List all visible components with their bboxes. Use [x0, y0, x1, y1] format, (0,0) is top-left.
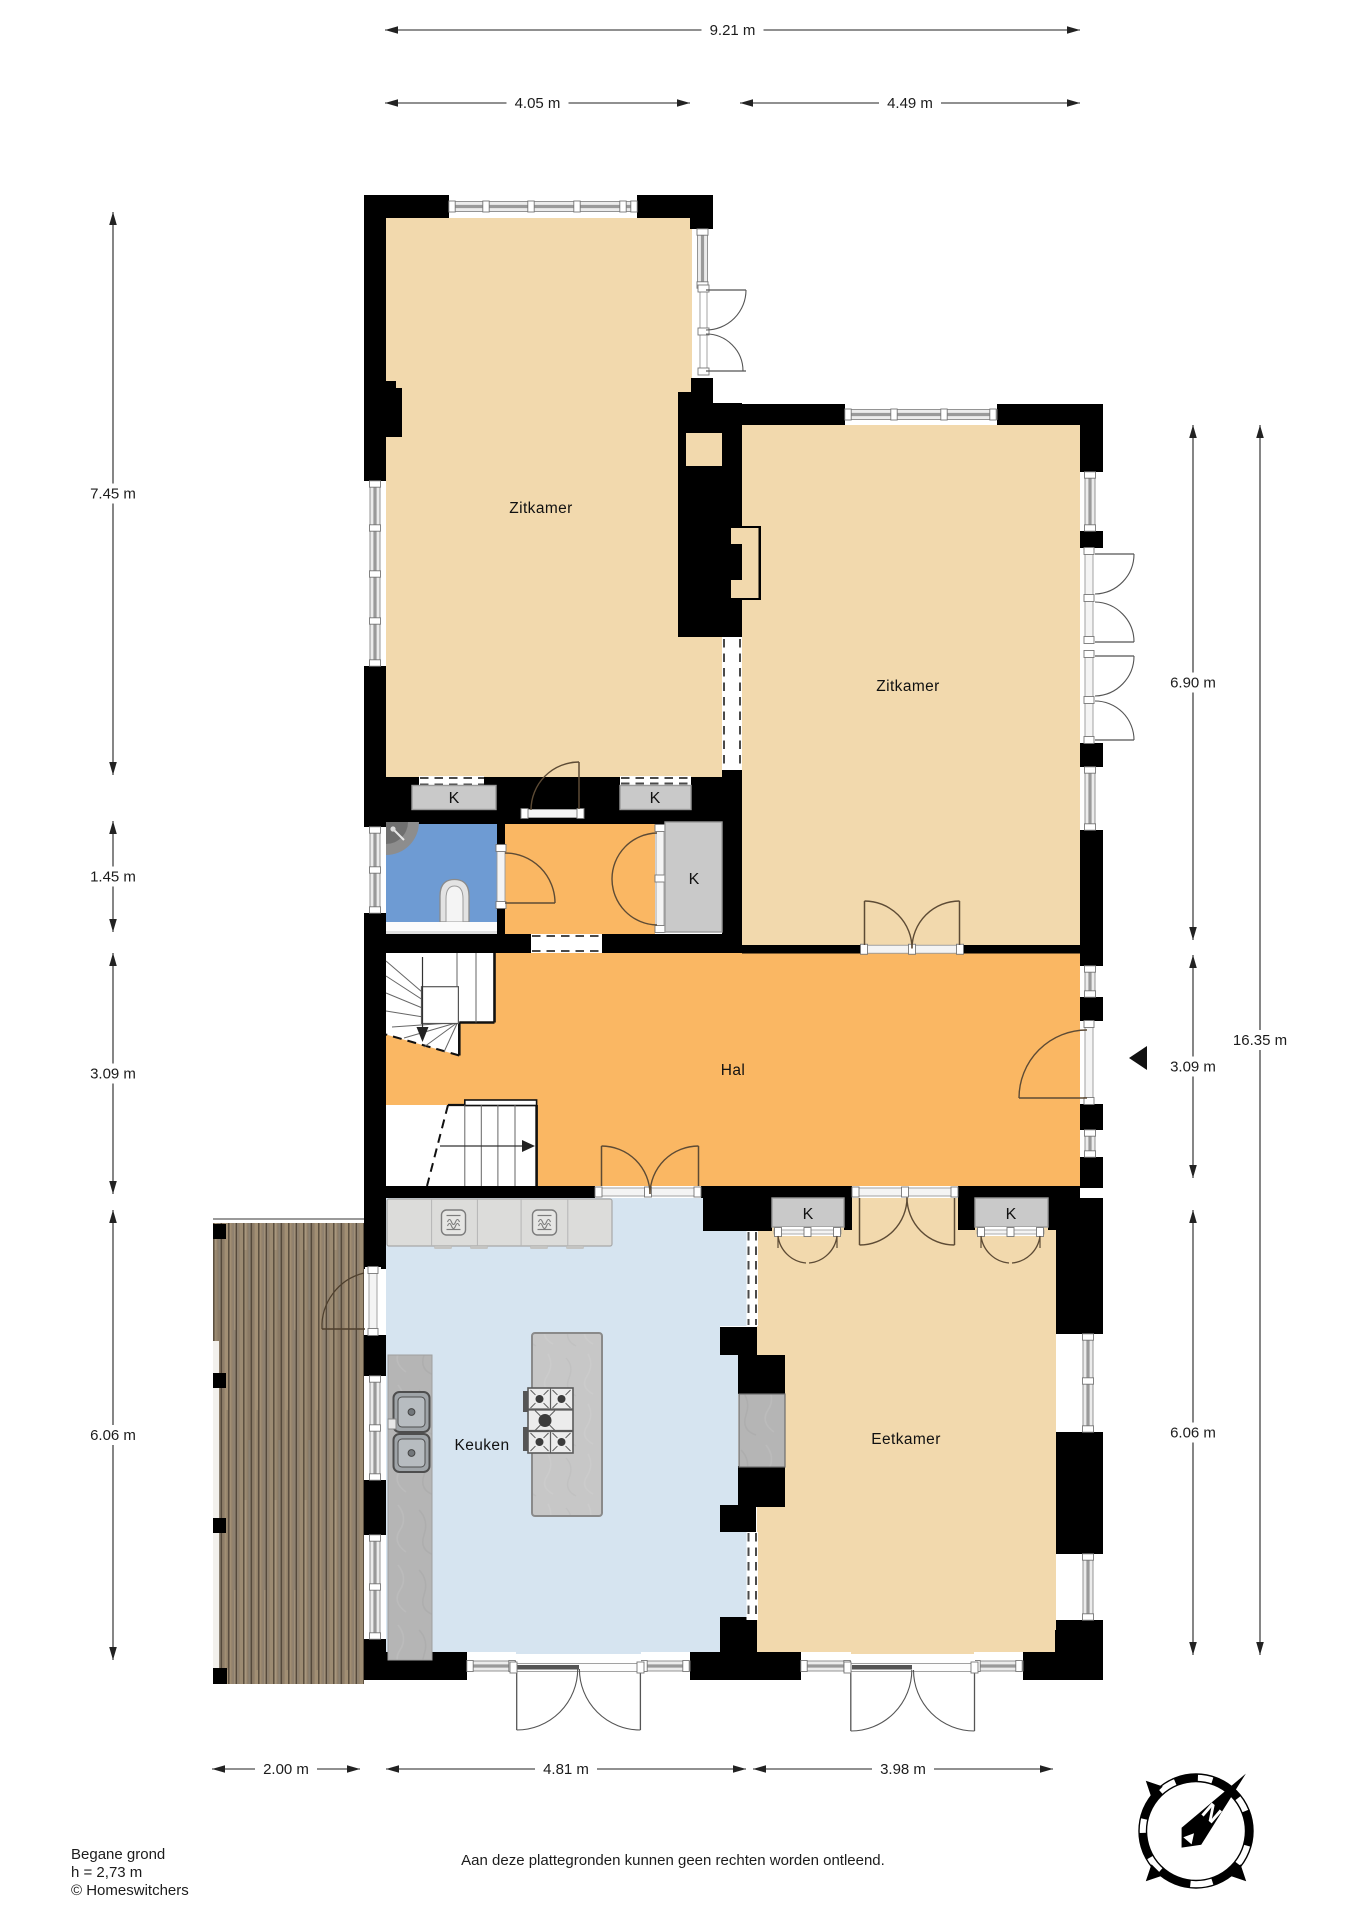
svg-text:4.05 m: 4.05 m — [515, 95, 561, 112]
svg-text:K: K — [650, 790, 661, 807]
svg-text:16.35 m: 16.35 m — [1233, 1032, 1287, 1049]
svg-text:6.90 m: 6.90 m — [1170, 675, 1216, 692]
svg-text:Eetkamer: Eetkamer — [871, 1431, 941, 1448]
svg-text:© Homeswitchers: © Homeswitchers — [71, 1882, 189, 1899]
svg-text:Zitkamer: Zitkamer — [509, 500, 572, 517]
svg-text:2.00 m: 2.00 m — [263, 1761, 309, 1778]
svg-text:K: K — [689, 871, 700, 888]
svg-text:7.45 m: 7.45 m — [90, 486, 136, 503]
svg-text:Aan deze plattegronden kunnen: Aan deze plattegronden kunnen geen recht… — [461, 1852, 885, 1869]
svg-text:h = 2,73 m: h = 2,73 m — [71, 1864, 142, 1881]
svg-text:3.98 m: 3.98 m — [880, 1761, 926, 1778]
svg-text:3.09 m: 3.09 m — [1170, 1059, 1216, 1076]
svg-text:Keuken: Keuken — [455, 1437, 510, 1454]
svg-text:4.49 m: 4.49 m — [887, 95, 933, 112]
svg-text:Begane grond: Begane grond — [71, 1846, 165, 1863]
svg-text:6.06 m: 6.06 m — [90, 1427, 136, 1444]
svg-text:K: K — [449, 790, 460, 807]
svg-text:9.21 m: 9.21 m — [710, 22, 756, 39]
svg-text:6.06 m: 6.06 m — [1170, 1425, 1216, 1442]
svg-text:K: K — [803, 1206, 814, 1223]
svg-text:3.09 m: 3.09 m — [90, 1066, 136, 1083]
svg-text:4.81 m: 4.81 m — [543, 1761, 589, 1778]
svg-text:Zitkamer: Zitkamer — [876, 678, 939, 695]
svg-text:1.45 m: 1.45 m — [90, 869, 136, 886]
svg-text:Hal: Hal — [721, 1062, 745, 1079]
svg-text:K: K — [1006, 1206, 1017, 1223]
